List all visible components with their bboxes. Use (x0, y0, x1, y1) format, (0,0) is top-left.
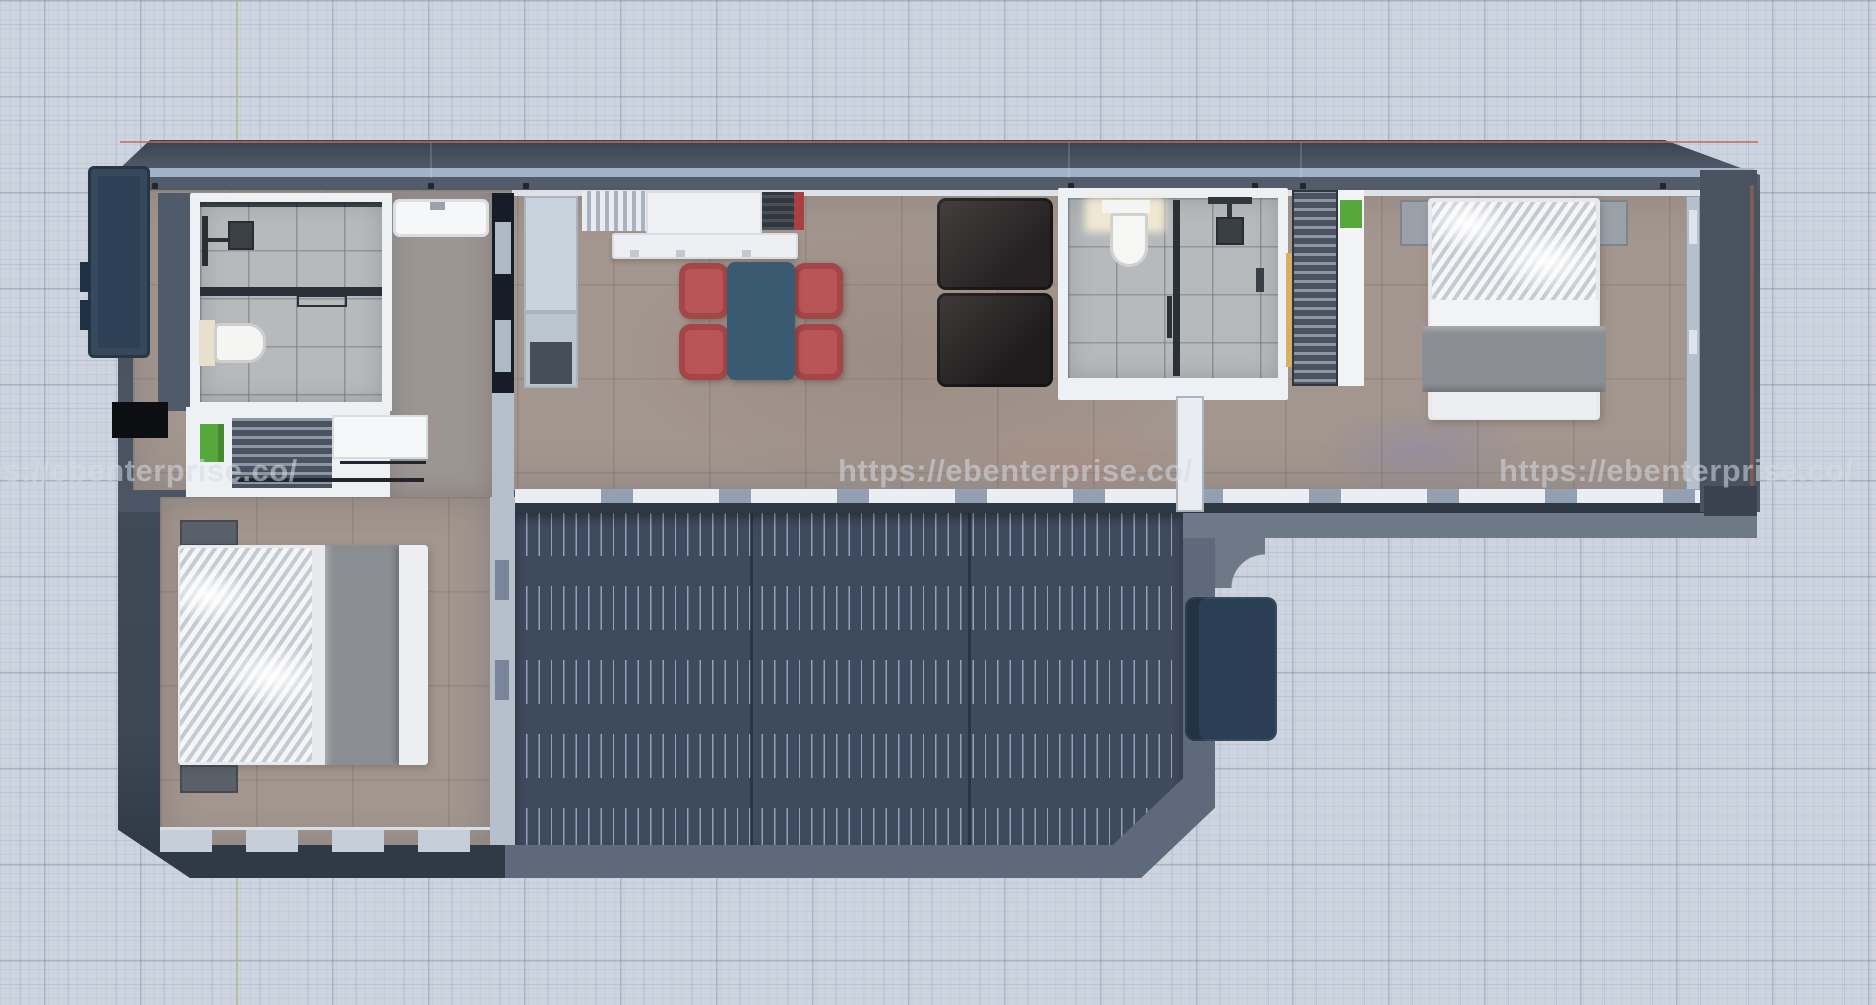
toilet-tank (199, 320, 215, 366)
towel-handle (1256, 268, 1264, 292)
shower-bar (1208, 197, 1252, 204)
roof-bolt (152, 183, 158, 189)
roof-seam (1068, 142, 1070, 178)
bed-1-pillows (180, 548, 312, 762)
island-handle (630, 250, 639, 257)
exterior-panel-tab (80, 262, 90, 292)
sliding-door-panel (495, 320, 511, 372)
glass-partition (200, 287, 382, 296)
green-box (1340, 200, 1362, 228)
yellow-trim (1286, 253, 1292, 367)
bed-2-pillows (1432, 202, 1596, 300)
exterior-step-black (112, 402, 168, 438)
sliding-door-panel (495, 222, 511, 274)
wall-window-slot (1689, 210, 1697, 244)
shower-stem (1227, 204, 1232, 218)
dining-chair (679, 263, 729, 319)
glass-partition (1173, 200, 1180, 376)
floorplan-screenshot: https://ebenterprise.co/ https://ebenter… (0, 0, 1876, 1005)
exterior-door-panel (88, 166, 150, 358)
toilet-tank (1102, 200, 1150, 213)
sofa-cushion (937, 293, 1053, 387)
toilet-bowl (214, 323, 266, 363)
exterior-panel-tab (80, 300, 90, 330)
south-window-rail (515, 489, 1711, 503)
red-accent-strip (794, 192, 804, 230)
louver-wardrobe (1292, 190, 1338, 386)
hallway-west-frame (388, 193, 392, 411)
west-interior-wall (158, 193, 192, 411)
roof-bolt (428, 183, 434, 189)
shower-head (228, 221, 254, 250)
bedroom-1-window-band (160, 830, 490, 852)
nightstand (1598, 200, 1628, 246)
island-handle (742, 250, 751, 257)
roof-seam (1300, 142, 1302, 178)
bed-2-blanket (1422, 326, 1606, 392)
wall-slot (495, 660, 509, 700)
cabinet-white-panel (332, 415, 428, 459)
wall-stub (492, 393, 514, 497)
kitchen-counter (646, 191, 762, 237)
bed-1-blanket (325, 545, 399, 765)
partition-handle (1167, 296, 1172, 338)
partition-handle (297, 295, 347, 307)
vent-grille (582, 191, 646, 231)
deck-stairs (1185, 597, 1277, 741)
roof-accent-strip (120, 168, 1754, 177)
nightstand (180, 520, 238, 546)
deck-seam (968, 512, 971, 845)
island-handle (676, 250, 685, 257)
axis-x-red-line (120, 141, 1758, 143)
walkway-corner-fillet (1215, 538, 1265, 588)
roof-bolt (523, 183, 529, 189)
bed-2-sheet-fold (1430, 300, 1598, 326)
watermark: https://ebenterprise.co/ (1499, 453, 1854, 491)
dining-chair (793, 324, 843, 380)
roof-bolt (1660, 183, 1666, 189)
toilet-bowl (1110, 213, 1148, 267)
nightstand (180, 765, 238, 793)
dining-chair (793, 263, 843, 319)
wall-window-slot (1689, 330, 1697, 354)
sofa-cushion (937, 198, 1053, 290)
bed-1-foot (399, 545, 428, 765)
bed-2-foot (1432, 392, 1596, 418)
roof-bolt (1300, 183, 1306, 189)
deck-seam (750, 512, 753, 845)
nightstand (1400, 200, 1430, 246)
shower-head (1216, 217, 1244, 245)
watermark: https://ebenterprise.co/ (0, 453, 298, 491)
cabinet-rod (340, 461, 426, 464)
dining-table (727, 262, 795, 380)
watermark: https://ebenterprise.co/ (838, 453, 1193, 491)
kitchen-refrigerator (524, 196, 578, 312)
roof-seam (430, 142, 432, 178)
deck-slats (515, 512, 1183, 845)
kitchen-island (612, 233, 798, 259)
cooktop (762, 192, 794, 230)
shower-track (200, 202, 382, 207)
cabinet-open-shelf (530, 342, 572, 384)
wall-slot (495, 560, 509, 600)
dining-chair (679, 324, 729, 380)
south-wall-edge (515, 503, 1711, 513)
faucet (430, 202, 445, 210)
